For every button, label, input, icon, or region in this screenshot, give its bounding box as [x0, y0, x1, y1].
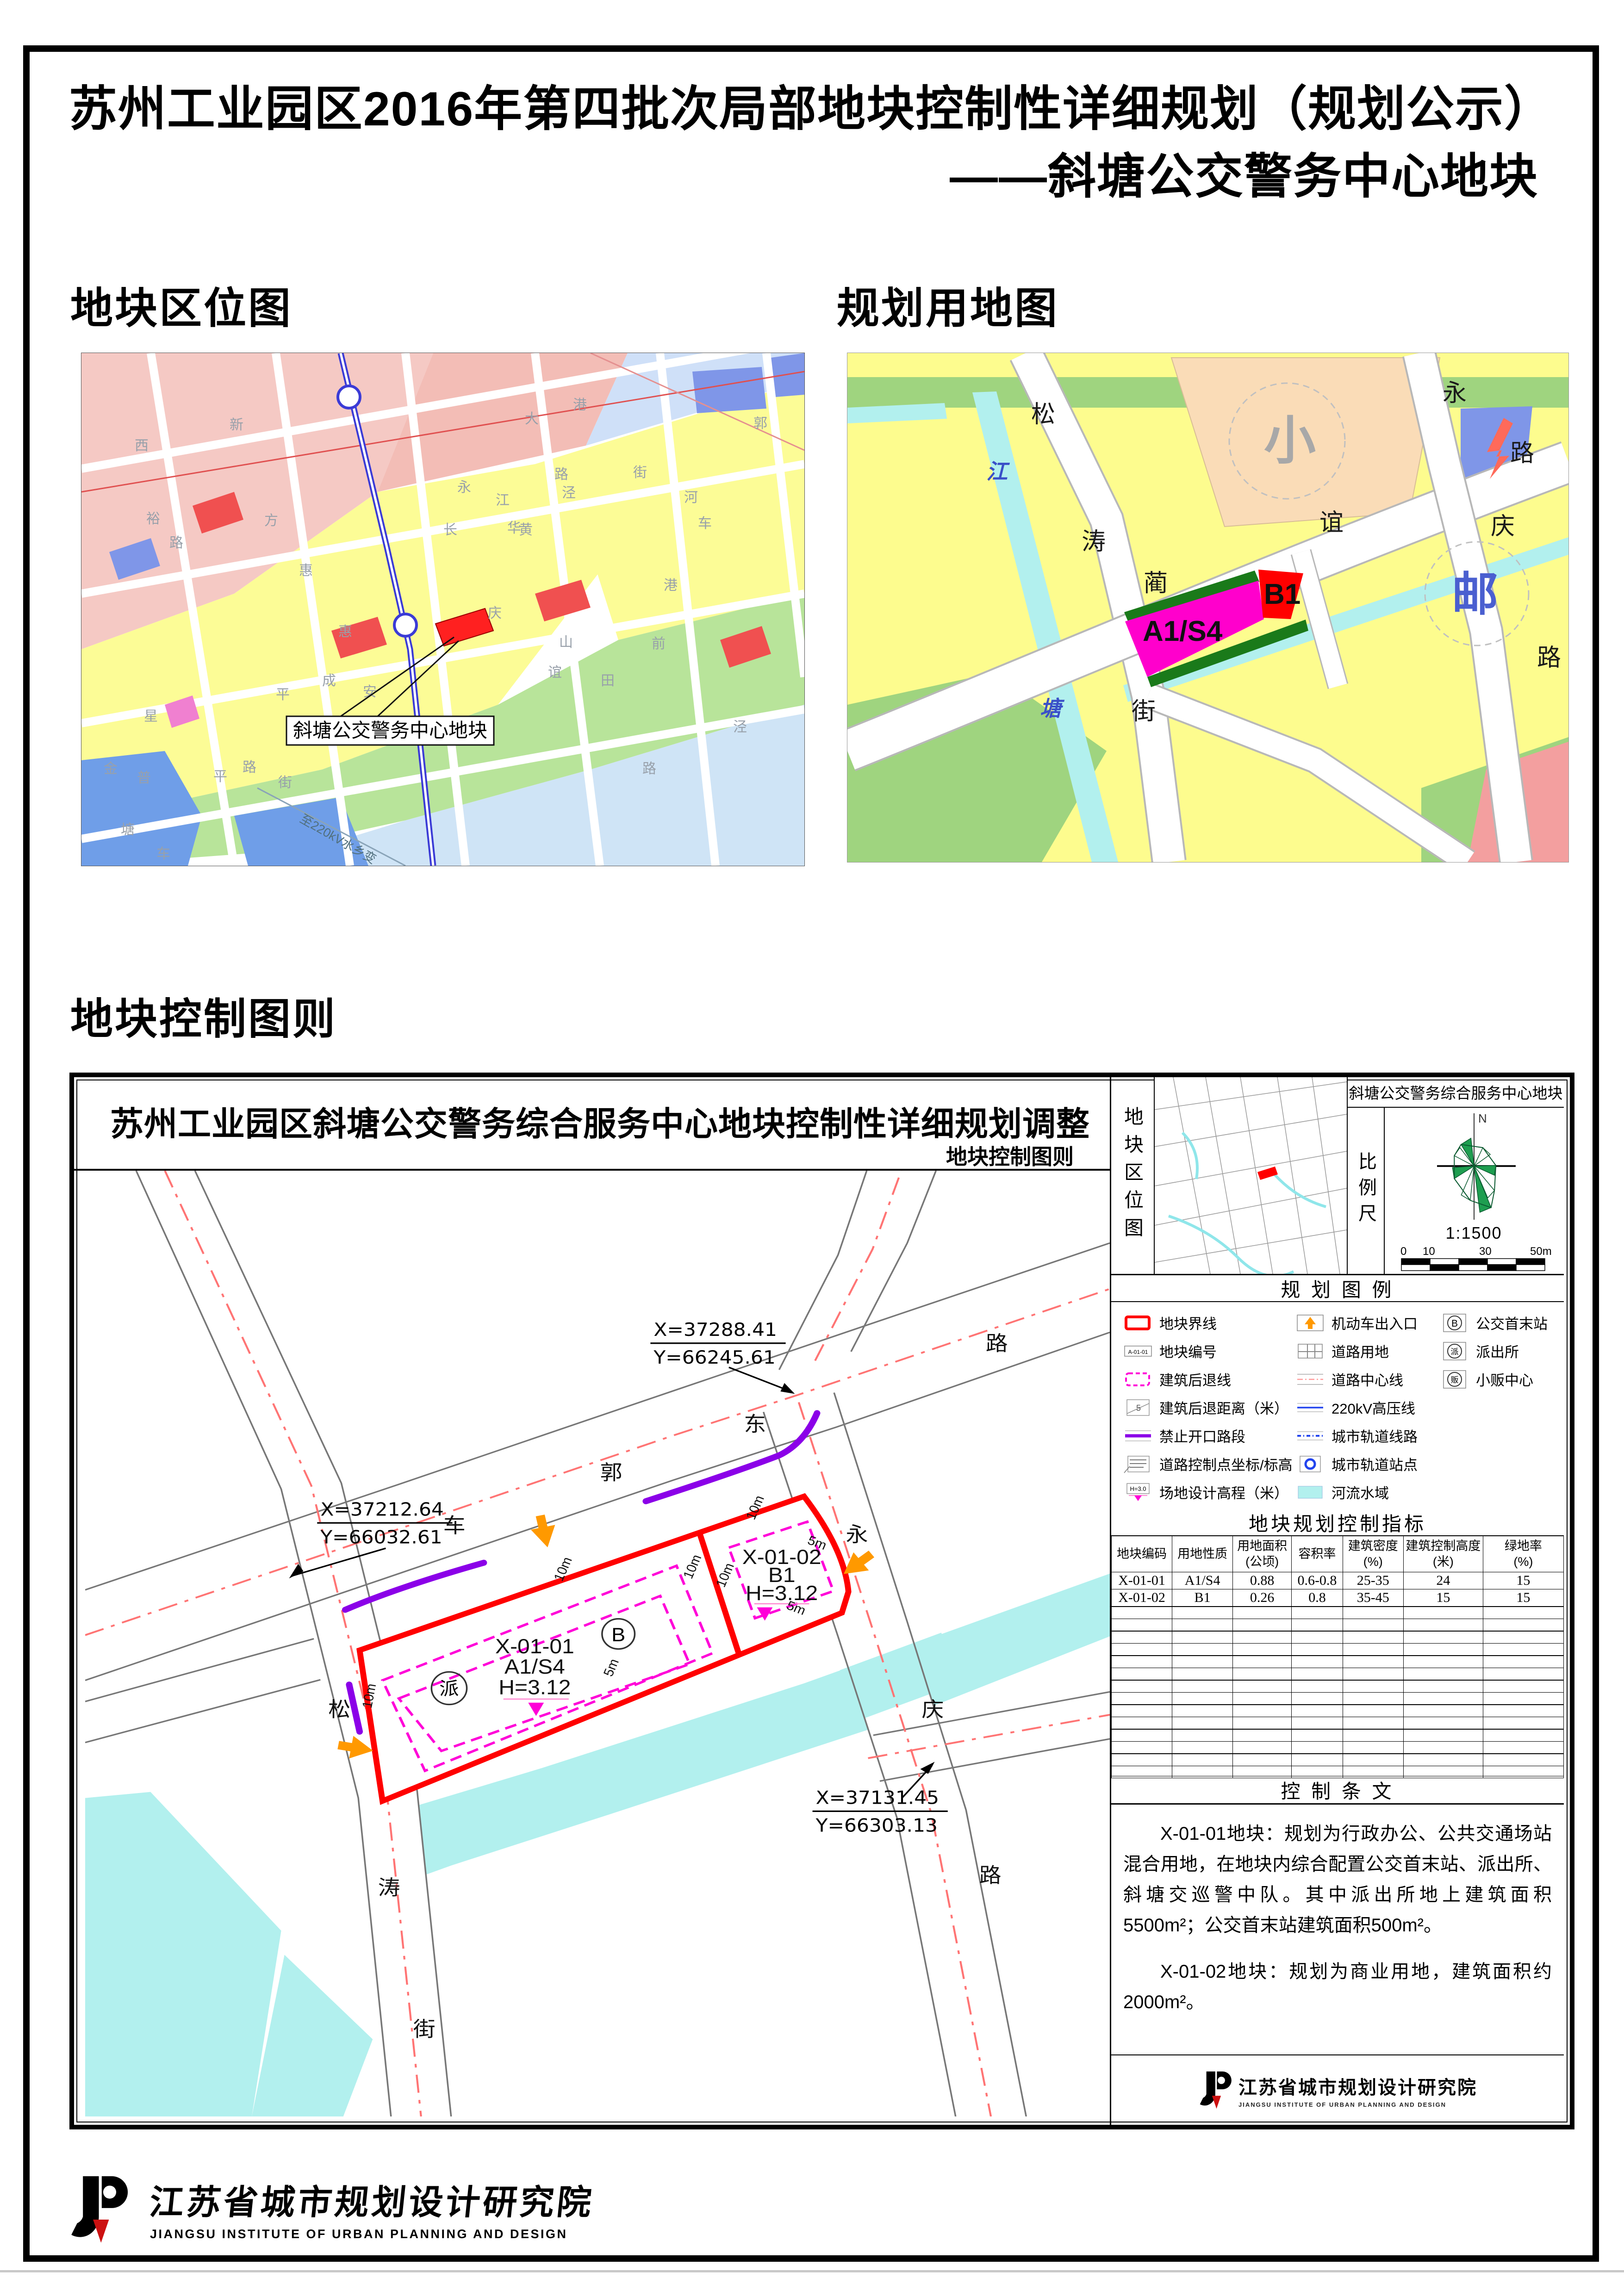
control-point-icon	[1123, 1454, 1153, 1474]
vehicle-entrance-icon	[1295, 1313, 1325, 1333]
coord-x: X=37288.41	[653, 1319, 777, 1340]
callout-label: 斜塘公交警务中心地块	[293, 720, 487, 741]
parcel1-use: A1/S4	[504, 1655, 565, 1678]
plan-drawing: X-01-01 A1/S4 H=3.12 X-01-02 B1 H=3.12 派…	[85, 1171, 1110, 2116]
legend-label: 220kV高压线	[1332, 1397, 1415, 1418]
parcel2-height: H=3.12	[746, 1582, 818, 1605]
plan-street-label: 车	[443, 1514, 466, 1537]
street-label: 庆	[488, 606, 502, 621]
map-label: 涛	[1082, 528, 1106, 555]
sheet-sidebar: 地块区位图	[1110, 1077, 1564, 2125]
svg-text:B: B	[1451, 1318, 1458, 1329]
map-label: 永	[1443, 380, 1467, 407]
planning-notice-page: 苏州工业园区2016年第四批次局部地块控制性详细规划（规划公示） ——斜塘公交警…	[0, 0, 1624, 2296]
legend-title: 规 划 图 例	[1111, 1275, 1564, 1302]
street-label: 平	[213, 769, 227, 784]
legend-label: 场地设计高程（米）	[1159, 1482, 1288, 1502]
legend-item: 220kV高压线	[1295, 1397, 1440, 1418]
legend-item: A-01-01 地块编号	[1123, 1340, 1295, 1361]
hawker-centre-icon: 贩	[1440, 1370, 1469, 1389]
control-plan-sheet: 苏州工业园区斜塘公交警务综合服务中心地块控制性详细规划调整 地块控制图则	[69, 1073, 1574, 2129]
legend-label: 城市轨道站点	[1332, 1453, 1418, 1474]
scale-vertical-label: 比例尺	[1348, 1107, 1385, 1274]
legend-item: B 公交首末站	[1440, 1312, 1560, 1333]
footer-institute-cn: 江苏省城市规划设计研究院	[147, 2175, 597, 2224]
setback-distance-icon: 5	[1123, 1398, 1153, 1417]
map-label: A1/S4	[1143, 615, 1223, 647]
map-label: 江	[986, 459, 1010, 484]
legend-item: 道路中心线	[1295, 1369, 1440, 1390]
metro-station-icon	[1295, 1454, 1325, 1474]
table-title: 地块规划控制指标	[1111, 1509, 1564, 1536]
site-elevation-icon: H=3.0	[1123, 1483, 1153, 1502]
street-label: 河	[684, 490, 698, 505]
street-label: 街	[633, 465, 647, 480]
bus-terminus-icon: B	[1440, 1313, 1469, 1333]
legend-item: 河流水域	[1295, 1482, 1440, 1502]
legend-item: 城市轨道站点	[1295, 1453, 1440, 1474]
legend-label: 派出所	[1476, 1340, 1519, 1361]
sheet-subtitle: 地块控制图则	[74, 1140, 1074, 1171]
page-bottom-shadow	[0, 2270, 1624, 2272]
legend-item: 机动车出入口	[1295, 1312, 1440, 1333]
setback-line-icon	[1123, 1370, 1153, 1389]
metro-station-icon	[338, 386, 360, 408]
street-label: 方	[264, 513, 278, 528]
indicator-table: 地块编码 用地性质 用地面积(公顷) 容积率 建筑密度(%) 建筑控制高度(米)…	[1111, 1535, 1564, 1776]
provision-paragraph-1: X-01-01地块：规划为行政办公、公共交通场站混合用地，在地块内综合配置公交首…	[1123, 1818, 1552, 1941]
legend-label: 城市轨道线路	[1332, 1425, 1418, 1446]
legend-label: 道路控制点坐标/标高	[1159, 1453, 1293, 1474]
scale-tick: 30	[1479, 1246, 1492, 1258]
legend-label: 地块界线	[1159, 1312, 1217, 1333]
north-letter: N	[1478, 1111, 1487, 1125]
svg-text:H=3.0: H=3.0	[1130, 1485, 1146, 1492]
legend-label: 河流水域	[1332, 1482, 1389, 1502]
map-label: 路	[1510, 440, 1534, 467]
coord-y: Y=66303.13	[815, 1815, 938, 1836]
street-label: 田	[601, 673, 615, 689]
plan-street-label: 郭	[600, 1461, 622, 1484]
legend-label: 建筑后退线	[1159, 1369, 1231, 1390]
scale-bar: 0 10 30 50m	[1397, 1246, 1554, 1275]
street-label: 塘	[121, 822, 135, 838]
street-label: 金	[104, 761, 118, 776]
sidebar-scale-cell: 斜塘公交警务综合服务中心地块 比例尺 N	[1348, 1077, 1564, 1274]
institute-name-en: JIANGSU INSTITUTE OF URBAN PLANNING AND …	[1238, 2101, 1477, 2108]
legend-label: 禁止开口路段	[1159, 1425, 1245, 1446]
section-heading-landuse-map: 规划用地图	[837, 274, 1059, 335]
no-opening-icon	[1123, 1426, 1153, 1446]
project-name: 斜塘公交警务综合服务中心地块	[1348, 1077, 1564, 1108]
legend-item: 贩 小贩中心	[1440, 1369, 1560, 1390]
institute-logo	[1198, 2071, 1232, 2110]
street-label: 惠	[299, 563, 313, 578]
sheet-title-band: 苏州工业园区斜塘公交警务综合服务中心地块控制性详细规划调整 地块控制图则	[74, 1077, 1110, 1171]
legend-item: 禁止开口路段	[1123, 1425, 1295, 1446]
street-label: 泾	[562, 485, 576, 501]
wind-rose	[1446, 1134, 1506, 1216]
locator-minimap-svg	[1155, 1077, 1347, 1274]
street-label: 街	[278, 775, 292, 790]
legend-label: 小贩中心	[1476, 1369, 1533, 1390]
plan-street-label: 路	[979, 1864, 1002, 1887]
street-label: 路	[642, 761, 656, 776]
street-label: 港	[664, 578, 678, 593]
road-centerline-icon	[1295, 1370, 1325, 1389]
scale-tick: 10	[1423, 1246, 1435, 1258]
section-heading-control-plan: 地块控制图则	[70, 985, 337, 1046]
parcel1-height: H=3.12	[498, 1675, 571, 1699]
scale-tick: 0	[1400, 1246, 1406, 1258]
table-header-row: 地块编码 用地性质 用地面积(公顷) 容积率 建筑密度(%) 建筑控制高度(米)…	[1112, 1536, 1564, 1572]
street-label: 谊	[548, 665, 562, 680]
map-label: 塘	[1040, 696, 1065, 720]
section-heading-location-map: 地块区位图	[70, 274, 292, 335]
plan-street-label: 涛	[378, 1876, 400, 1899]
map-label: 松	[1031, 401, 1055, 428]
locator-vertical-label: 地块区位图	[1111, 1077, 1155, 1274]
legend-item: H=3.0 场地设计高程（米）	[1123, 1482, 1295, 1502]
street-label: 车	[698, 516, 712, 531]
street-label: 成	[322, 673, 336, 689]
legend-item: 城市轨道线路	[1295, 1425, 1440, 1446]
parcel-number-icon: A-01-01	[1123, 1341, 1153, 1361]
street-label: 大	[525, 411, 539, 427]
map-label: 小	[1264, 412, 1316, 470]
street-label: 路	[169, 535, 183, 551]
legend-label: 地块编号	[1159, 1340, 1217, 1361]
street-label: 平	[276, 687, 290, 702]
table-row: X-01-01A1/S4 0.880.6-0.8 25-3524 15	[1112, 1572, 1564, 1589]
coord-x: X=37212.64	[320, 1499, 444, 1520]
locator-minimap	[1155, 1077, 1348, 1274]
street-label: 江	[496, 493, 510, 508]
provisions-text: X-01-01地块：规划为行政办公、公共交通场站混合用地，在地块内综合配置公交首…	[1111, 1803, 1564, 2054]
minimap-water	[1169, 1133, 1326, 1274]
facility-parcel	[692, 367, 766, 413]
plan-street-label: 东	[744, 1413, 766, 1436]
street-label: 路	[554, 467, 568, 482]
police-badge: 派	[439, 1678, 459, 1699]
bus-badge: B	[611, 1624, 625, 1645]
plan-street-label: 永	[846, 1523, 868, 1546]
street-label: 车	[156, 846, 170, 862]
street-label: 西	[135, 438, 149, 453]
street-label: 普	[137, 770, 151, 786]
sheet-title: 苏州工业园区斜塘公交警务综合服务中心地块控制性详细规划调整	[110, 1097, 1090, 1145]
metro-station-icon	[394, 614, 417, 636]
river-icon	[1295, 1483, 1325, 1502]
map-label: 路	[1537, 645, 1561, 671]
legend-item: 地块界线	[1123, 1312, 1295, 1333]
doc-title-line1: 苏州工业园区2016年第四批次局部地块控制性详细规划（规划公示）	[30, 69, 1593, 139]
table-row: X-01-02B1 0.260.8 35-4515 15	[1112, 1589, 1564, 1607]
coord-x: X=37131.45	[816, 1787, 940, 1808]
street-label: 裕	[146, 511, 160, 527]
coord-y: Y=66032.61	[320, 1527, 442, 1548]
street-label: 华	[507, 521, 521, 536]
provision-paragraph-2: X-01-02地块：规划为商业用地，建筑面积约2000m²。	[1123, 1956, 1552, 2017]
location-map: 至220kV水乡变 西裕路新方惠惠成安平平路街星金普塘车长永庆黄山谊江华大港路泾…	[81, 353, 805, 866]
plan-street-label: 松	[328, 1698, 350, 1721]
legend-item: 5 建筑后退距离（米）	[1123, 1397, 1295, 1418]
map-label: 庆	[1491, 513, 1515, 540]
legend-label: 建筑后退距离（米）	[1159, 1397, 1288, 1418]
legend-label: 机动车出入口	[1332, 1312, 1418, 1333]
legend-label: 道路用地	[1332, 1340, 1389, 1361]
street-label: 山	[559, 635, 573, 650]
parcel-boundary-icon	[1123, 1313, 1153, 1333]
metro-line-icon	[1295, 1426, 1325, 1446]
compass-area: N	[1384, 1107, 1564, 1274]
road-land-icon	[1295, 1341, 1325, 1361]
plan-street-label: 庆	[921, 1698, 944, 1721]
svg-text:A-01-01: A-01-01	[1128, 1349, 1148, 1355]
svg-text:5: 5	[1136, 1403, 1141, 1413]
street-label: 长	[443, 522, 457, 538]
legend-item: 派 派出所	[1440, 1340, 1560, 1361]
scale-tick: 50m	[1530, 1246, 1552, 1258]
legend-item: 建筑后退线	[1123, 1369, 1295, 1390]
sheet-institute-block: 江苏省城市规划设计研究院 JIANGSU INSTITUTE OF URBAN …	[1111, 2054, 1564, 2125]
legend-item: 道路控制点坐标/标高	[1123, 1453, 1295, 1474]
map-label: 谊	[1319, 509, 1344, 536]
map-label: B1	[1264, 578, 1300, 610]
map-label: 蔺	[1144, 570, 1168, 597]
map-label: 邮	[1452, 569, 1498, 621]
street-label: 惠	[338, 624, 352, 639]
landuse-map: 松涛街蔺谊永路庆路江塘小邮A1/S4B1	[847, 353, 1569, 863]
street-label: 永	[457, 480, 471, 495]
street-label: 前	[652, 636, 666, 652]
street-label: 郭	[753, 416, 767, 431]
institute-name-cn: 江苏省城市规划设计研究院	[1238, 2073, 1477, 2099]
legend-grid: 地块界线 机动车出入口 B 公交首末站 A-01-01 地块编号	[1111, 1302, 1564, 1509]
plan-street-label: 路	[986, 1332, 1008, 1355]
street-label: 港	[573, 397, 587, 413]
powerline-icon	[1295, 1398, 1325, 1417]
minimap-target-parcel	[1257, 1167, 1278, 1180]
footer-institute-block: 江苏省城市规划设计研究院 JIANGSU INSTITUTE OF URBAN …	[59, 2175, 594, 2244]
coord-y: Y=66245.61	[653, 1347, 775, 1368]
provisions-title: 控 制 条 文	[1111, 1776, 1564, 1805]
street-label: 泾	[733, 720, 747, 735]
compass-rose: N	[1384, 1107, 1564, 1222]
footer-institute-logo	[59, 2175, 137, 2244]
svg-text:派: 派	[1451, 1347, 1459, 1356]
street-label: 新	[230, 417, 243, 433]
scale-ratio: 1:1500	[1384, 1223, 1564, 1243]
sidebar-top-row: 地块区位图	[1111, 1077, 1564, 1275]
legend-item: 道路用地	[1295, 1340, 1440, 1361]
police-station-icon: 派	[1440, 1341, 1469, 1361]
svg-text:贩: 贩	[1451, 1376, 1459, 1384]
parcel1-code: X-01-01	[495, 1635, 574, 1658]
footer-institute-en: JIANGSU INSTITUTE OF URBAN PLANNING AND …	[150, 2227, 594, 2241]
legend-label: 公交首末站	[1476, 1312, 1548, 1333]
street-label: 星	[144, 709, 158, 724]
plan-street-label: 街	[413, 2017, 436, 2041]
doc-title-line2: ——斜塘公交警务中心地块	[950, 137, 1538, 207]
map-label: 街	[1132, 698, 1156, 725]
legend-label: 道路中心线	[1332, 1369, 1403, 1390]
street-label: 路	[243, 760, 256, 775]
